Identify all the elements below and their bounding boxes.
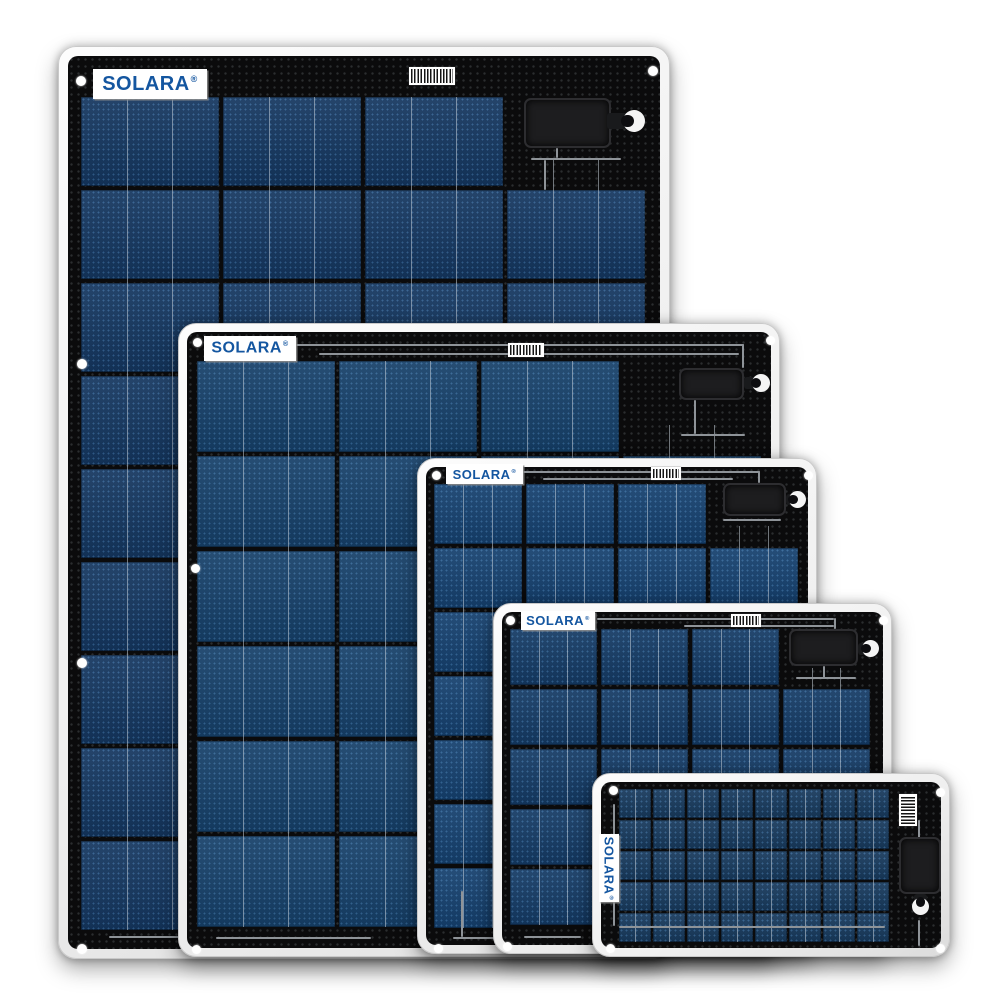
solar-cell bbox=[601, 629, 688, 685]
junction-box bbox=[723, 483, 786, 516]
cell-bus-line bbox=[567, 629, 568, 925]
bus-wire bbox=[523, 471, 760, 473]
solar-cell bbox=[434, 548, 522, 608]
cell-bus-line bbox=[463, 484, 464, 928]
solara-logo-text: SOLARA® bbox=[102, 74, 198, 94]
solar-cell bbox=[434, 484, 522, 544]
bus-wire bbox=[619, 926, 885, 928]
solar-cell bbox=[365, 97, 503, 186]
solar-cell bbox=[618, 548, 706, 608]
solara-logo-text: SOLARA® bbox=[603, 836, 616, 900]
mounting-hole bbox=[936, 944, 945, 953]
cell-bus-line bbox=[805, 789, 806, 942]
cable-grommet-icon bbox=[752, 374, 770, 392]
cell-bus-line bbox=[539, 629, 540, 925]
solara-logo: SOLARA® bbox=[599, 834, 619, 902]
cable-grommet-icon bbox=[912, 898, 929, 915]
bus-wire bbox=[681, 434, 745, 436]
solar-cell bbox=[510, 749, 597, 805]
mounting-hole bbox=[434, 944, 443, 953]
solar-cell bbox=[223, 97, 361, 186]
solara-logo-text: SOLARA® bbox=[526, 614, 590, 627]
junction-box bbox=[524, 98, 611, 148]
mounting-hole bbox=[766, 336, 775, 345]
bus-wire bbox=[556, 148, 558, 158]
bus-wire bbox=[694, 400, 696, 434]
grommet-hole bbox=[788, 495, 798, 505]
barcode-label bbox=[651, 467, 681, 480]
solar-cell bbox=[526, 484, 614, 544]
mounting-hole bbox=[804, 471, 813, 480]
barcode-stripes bbox=[733, 616, 759, 625]
solar-cell bbox=[526, 548, 614, 608]
solar-cell bbox=[197, 646, 335, 737]
cell-bus-line bbox=[288, 361, 289, 927]
cell-bus-line bbox=[839, 789, 840, 942]
barcode-label bbox=[508, 343, 544, 357]
mounting-hole bbox=[193, 338, 202, 347]
product-photo-stage: SOLARA®SOLARA®SOLARA®SOLARA®SOLARA® bbox=[0, 0, 1000, 1000]
solar-cell-grid bbox=[619, 789, 889, 942]
grommet-hole bbox=[916, 897, 926, 907]
bus-wire bbox=[796, 677, 856, 679]
solar-cell bbox=[783, 689, 870, 745]
mounting-hole bbox=[879, 616, 888, 625]
cell-bus-line bbox=[669, 789, 670, 942]
bus-wire bbox=[918, 920, 920, 946]
grommet-hole bbox=[621, 115, 634, 128]
junction-box bbox=[789, 629, 858, 666]
solar-cell bbox=[601, 689, 688, 745]
solar-cell bbox=[339, 361, 477, 452]
mounting-hole bbox=[432, 471, 441, 480]
solar-cell bbox=[197, 361, 335, 452]
barcode-stripes bbox=[510, 345, 542, 355]
cell-bus-line bbox=[172, 97, 173, 930]
registered-trademark-symbol: ® bbox=[191, 74, 198, 84]
cell-bus-line bbox=[703, 789, 704, 942]
solar-panel-5-smallest: SOLARA® bbox=[592, 773, 950, 957]
solar-cell bbox=[81, 97, 219, 186]
solar-cell bbox=[710, 548, 798, 608]
solar-cell bbox=[81, 190, 219, 279]
mounting-hole bbox=[506, 616, 515, 625]
mounting-hole bbox=[77, 658, 87, 668]
cable-grommet-icon bbox=[789, 491, 806, 508]
registered-trademark-symbol: ® bbox=[283, 339, 289, 348]
bus-wire bbox=[758, 471, 760, 483]
barcode-label bbox=[731, 614, 761, 627]
solar-cell bbox=[365, 190, 503, 279]
barcode-label bbox=[409, 67, 455, 85]
bus-wire bbox=[524, 936, 581, 938]
cell-bus-line bbox=[873, 789, 874, 942]
bus-wire bbox=[918, 820, 920, 838]
solar-cell bbox=[481, 361, 619, 452]
cell-bus-line bbox=[771, 789, 772, 942]
mounting-hole bbox=[192, 945, 201, 954]
solar-cell bbox=[510, 629, 597, 685]
registered-trademark-symbol: ® bbox=[512, 469, 517, 475]
bus-wire bbox=[834, 618, 836, 629]
mounting-hole bbox=[648, 66, 658, 76]
solar-cell bbox=[510, 869, 597, 925]
cell-bus-line bbox=[635, 789, 636, 942]
cell-bus-line bbox=[737, 789, 738, 942]
solar-cell bbox=[197, 456, 335, 547]
bus-wire bbox=[597, 618, 834, 620]
mounting-hole bbox=[606, 944, 615, 953]
junction-box bbox=[679, 368, 744, 400]
solara-logo: SOLARA® bbox=[446, 464, 523, 484]
cell-bus-line bbox=[243, 361, 244, 927]
junction-box bbox=[899, 837, 941, 894]
barcode-stripes bbox=[653, 469, 679, 478]
mounting-hole bbox=[191, 564, 200, 573]
bus-wire bbox=[543, 478, 733, 480]
cell-bus-line bbox=[385, 361, 386, 927]
mounting-hole bbox=[503, 942, 512, 951]
bus-wire bbox=[216, 937, 371, 939]
barcode-label bbox=[899, 794, 917, 826]
solar-cell bbox=[223, 190, 361, 279]
solara-logo-text: SOLARA® bbox=[211, 340, 288, 356]
mounting-hole bbox=[76, 76, 86, 86]
bus-wire bbox=[544, 160, 546, 190]
solara-logo-text: SOLARA® bbox=[453, 468, 517, 481]
grommet-hole bbox=[751, 378, 761, 388]
barcode-stripes bbox=[411, 69, 453, 83]
cable-grommet-icon bbox=[623, 110, 645, 132]
solara-logo: SOLARA® bbox=[204, 336, 296, 361]
cell-bus-line bbox=[127, 97, 128, 930]
registered-trademark-symbol: ® bbox=[608, 895, 614, 900]
mounting-hole bbox=[609, 786, 618, 795]
solar-cell bbox=[507, 190, 645, 279]
grommet-hole bbox=[861, 644, 871, 654]
mounting-hole bbox=[77, 359, 87, 369]
bus-wire bbox=[742, 344, 744, 368]
solar-cell bbox=[618, 484, 706, 544]
solar-cell bbox=[510, 809, 597, 865]
solar-cell bbox=[197, 836, 335, 927]
solar-cell bbox=[197, 741, 335, 832]
mounting-hole bbox=[936, 788, 945, 797]
solar-cell bbox=[692, 689, 779, 745]
solara-logo: SOLARA® bbox=[93, 69, 207, 99]
solar-cell bbox=[692, 629, 779, 685]
solar-cell bbox=[510, 689, 597, 745]
cable-grommet-icon bbox=[862, 640, 879, 657]
mounting-hole bbox=[77, 944, 87, 954]
barcode-stripes bbox=[901, 796, 915, 824]
solara-logo: SOLARA® bbox=[521, 611, 595, 630]
bus-wire bbox=[723, 519, 781, 521]
registered-trademark-symbol: ® bbox=[585, 616, 590, 622]
bus-wire bbox=[461, 891, 463, 937]
solar-cell bbox=[197, 551, 335, 642]
